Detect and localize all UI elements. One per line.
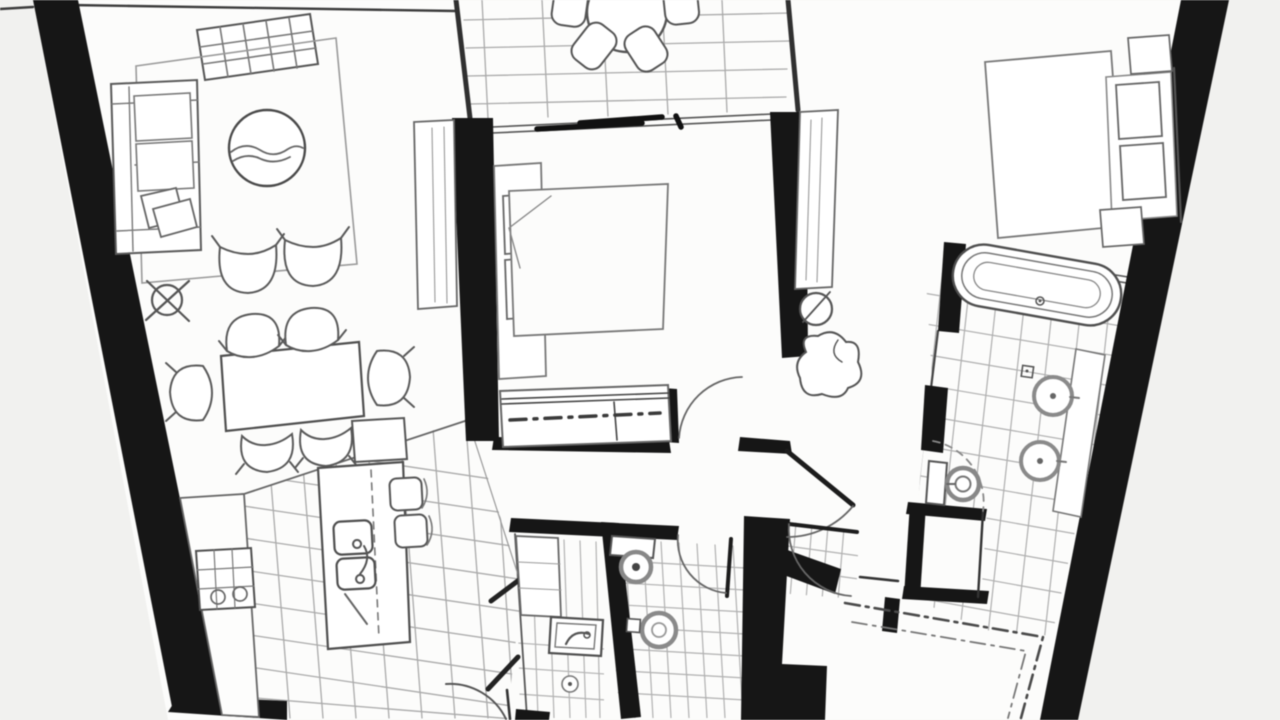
kitchen-upper-unit — [352, 418, 407, 462]
bar-stool-2 — [394, 514, 428, 548]
bed2-pillow-2 — [1120, 143, 1166, 200]
cooktop — [196, 548, 255, 610]
island-sink-2 — [336, 557, 376, 590]
bathtub-drain-dot — [1039, 300, 1042, 303]
balcony-chair-right — [662, 0, 700, 26]
bed2-pillow-1 — [1116, 82, 1162, 139]
plant — [797, 332, 861, 397]
bed1-duvet — [509, 184, 668, 336]
corridor-robe — [795, 110, 838, 289]
wardrobe-living-side — [414, 120, 457, 309]
wc-sink — [642, 613, 676, 647]
ensuite-toilet-tank — [926, 461, 947, 505]
laundry-cabinet — [516, 536, 561, 617]
sofa-cushion-2 — [136, 141, 194, 191]
sofa-cushion-1 — [134, 93, 192, 141]
dining-chair-top-2 — [285, 308, 338, 351]
laundry-floor-drain-dot — [568, 682, 572, 686]
floor-plan-canvas — [0, 0, 1280, 720]
dining-chair-top-1 — [226, 314, 279, 357]
wc-toilet-dot — [632, 563, 640, 571]
nightstand-bottom — [1100, 207, 1144, 247]
basin-2-dot — [1037, 458, 1043, 464]
coffee-table — [229, 110, 305, 186]
floor-plan-image — [0, 0, 1280, 720]
bar-stool-1 — [389, 477, 423, 511]
nightstand-top — [1128, 35, 1172, 74]
ensuite-floor-drain-dot — [1026, 370, 1029, 373]
wc-sink-tap — [627, 619, 641, 633]
basin-1-dot — [1050, 393, 1056, 399]
